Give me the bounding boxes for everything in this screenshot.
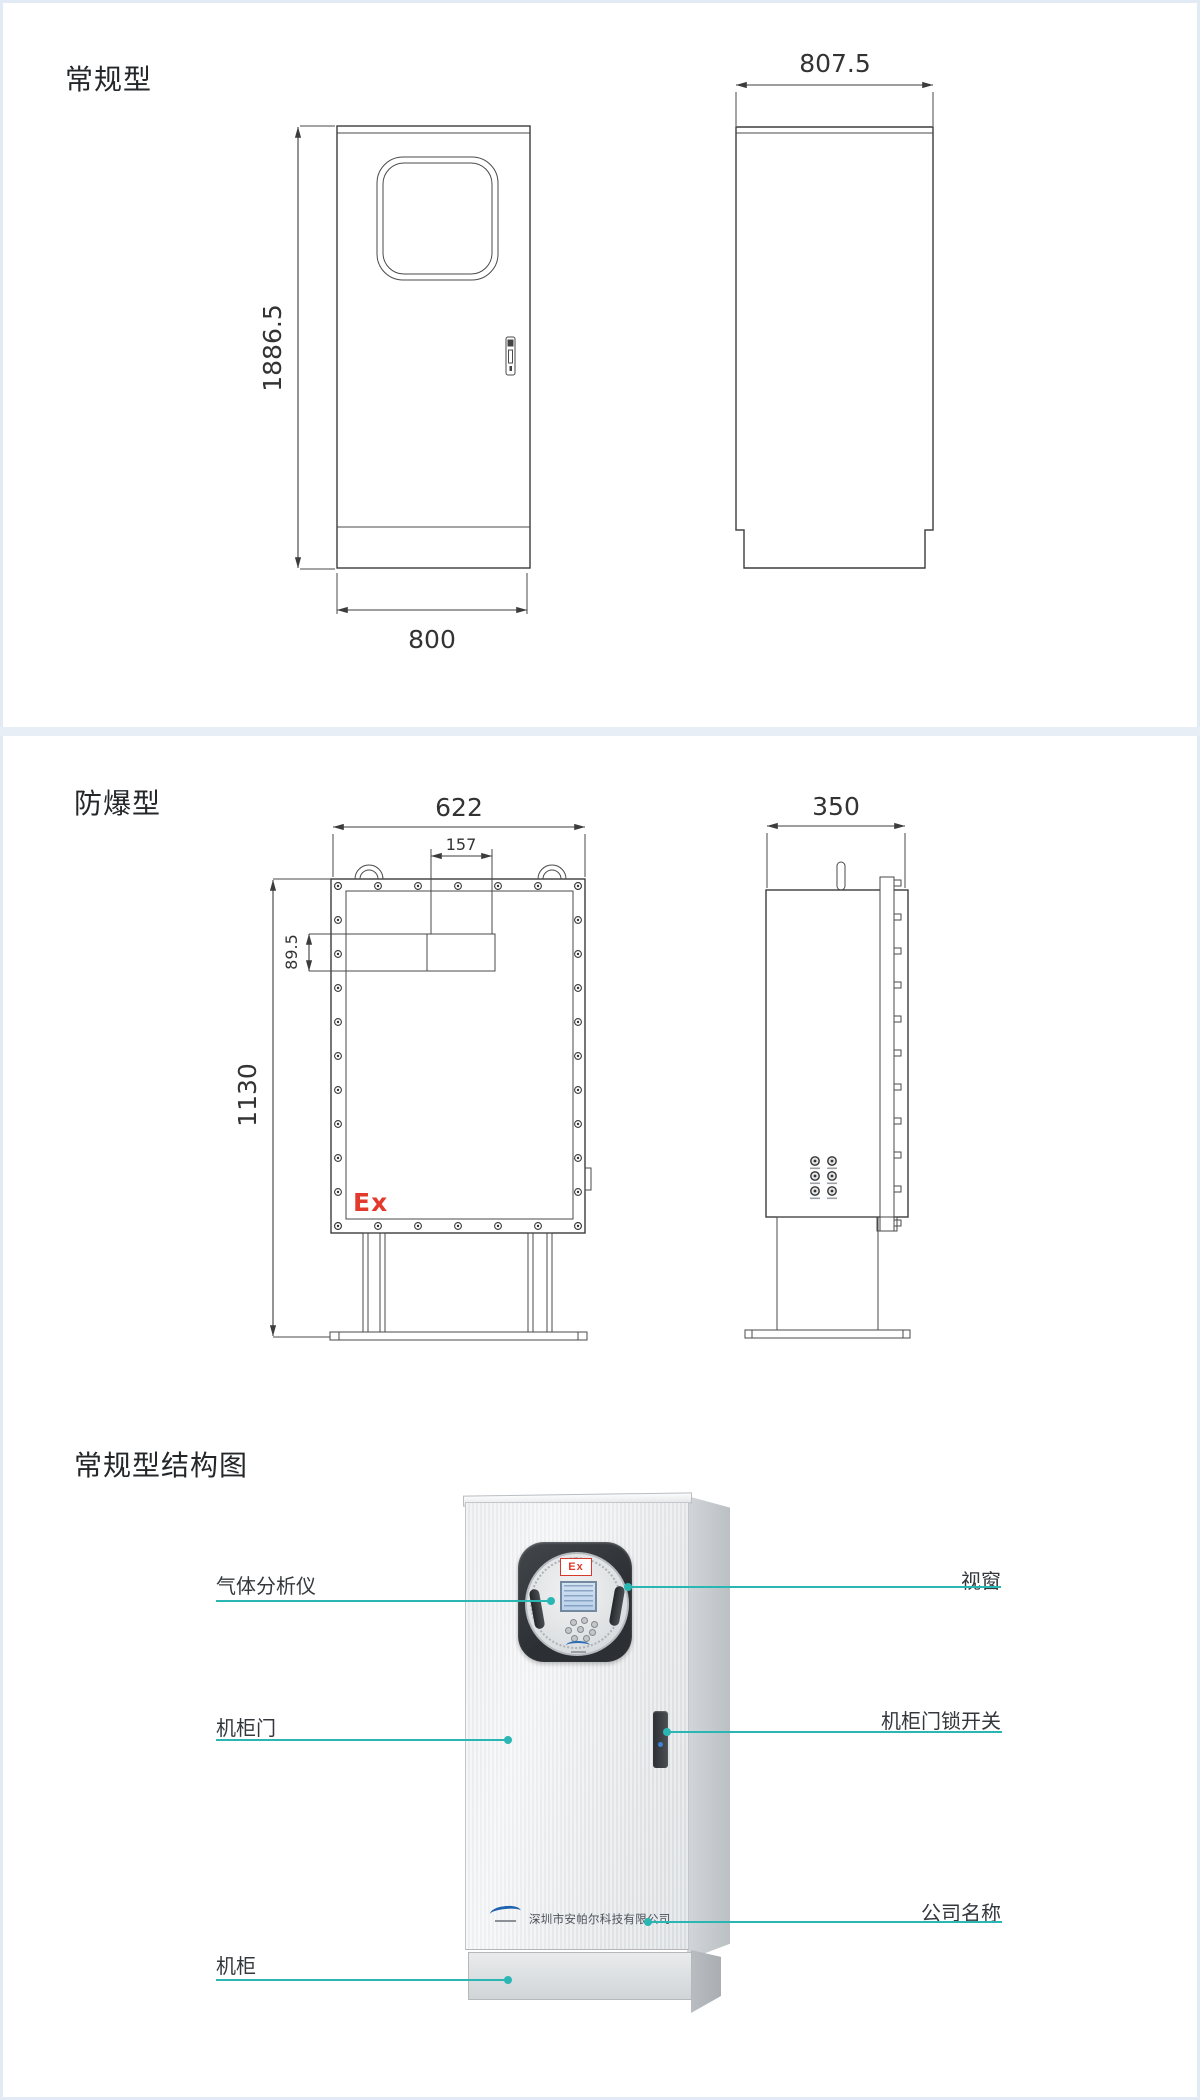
- explosion-depth-label: 350: [812, 792, 860, 821]
- leader-cabinet-door: [216, 1739, 508, 1741]
- lifting-eye-left: [355, 865, 383, 879]
- cabinet-side-face: [687, 1496, 730, 1960]
- leader-dot-gas-analyzer: [547, 1597, 555, 1605]
- callout-gas-analyzer: 气体分析仪: [216, 1570, 316, 1599]
- leader-dot-window: [624, 1583, 632, 1591]
- callout-lock-switch: 机柜门锁开关: [881, 1705, 1001, 1734]
- lifting-eye-right: [538, 865, 566, 879]
- regular-depth-dimension: 807.5: [736, 49, 933, 126]
- regular-front-view: [337, 126, 530, 568]
- regular-width-label: 800: [408, 625, 456, 654]
- knob: [565, 1627, 572, 1634]
- ex-badge: Ex: [560, 1558, 592, 1576]
- explosion-width-label: 622: [435, 793, 483, 822]
- regular-height-dimension: 1886.5: [258, 126, 335, 569]
- analyzer-logo-text: [571, 1651, 586, 1653]
- analyzer-logo-icon: [566, 1641, 590, 1650]
- ex-mark: Ex: [353, 1188, 388, 1217]
- port-height-dimension: 89.5: [282, 934, 427, 971]
- knob: [570, 1619, 577, 1626]
- explosion-front-view: Ex: [330, 865, 591, 1340]
- leader-dot-cabinet: [504, 1976, 512, 1984]
- knob: [591, 1621, 598, 1628]
- leader-gas-analyzer: [216, 1600, 551, 1602]
- explosion-side-view: [745, 862, 910, 1338]
- cable-glands: [810, 1157, 837, 1199]
- analyzer-knobs: [560, 1612, 598, 1642]
- engineering-drawing: 1886.5 800 807.5 Ex: [0, 0, 1200, 1400]
- lifting-eye-side: [837, 862, 845, 890]
- leader-window: [628, 1586, 1001, 1588]
- viewport-window-outline: [377, 157, 498, 280]
- base-plate-side: [745, 1330, 910, 1338]
- regular-width-dimension: 800: [337, 573, 527, 654]
- door-lock-switch: [653, 1711, 668, 1768]
- pedestal: [777, 1217, 878, 1330]
- junction-box: [427, 934, 495, 971]
- regular-depth-label: 807.5: [799, 49, 871, 78]
- hinge-tab: [585, 1168, 591, 1190]
- stand-legs: [363, 1233, 552, 1332]
- leader-lock-switch: [667, 1731, 1002, 1733]
- regular-height-label: 1886.5: [258, 304, 287, 391]
- analyzer-screen: [560, 1581, 597, 1612]
- explosion-height-label: 1130: [233, 1063, 262, 1127]
- leader-company-name: [648, 1921, 1002, 1923]
- knob: [581, 1617, 588, 1624]
- cabinet-plinth: [468, 1952, 692, 2000]
- structure-section-title: 常规型结构图: [74, 1444, 248, 1484]
- explosion-depth-dimension: 350: [767, 792, 905, 888]
- knob: [589, 1629, 596, 1636]
- callout-window: 视窗: [961, 1565, 1001, 1594]
- callout-cabinet: 机柜: [216, 1950, 256, 1979]
- port-height-label: 89.5: [282, 934, 301, 970]
- leader-cabinet: [216, 1979, 508, 1981]
- flange-bolts: [335, 883, 582, 1230]
- leader-dot-cabinet-door: [504, 1736, 512, 1744]
- port-width-label: 157: [446, 835, 477, 854]
- door-handle: [506, 337, 515, 375]
- knob: [577, 1626, 584, 1633]
- base-plate: [330, 1332, 587, 1340]
- leader-dot-lock-switch: [663, 1728, 671, 1736]
- callout-cabinet-door: 机柜门: [216, 1712, 276, 1741]
- door-flange-side: [880, 877, 894, 1231]
- company-logo-subtext: [495, 1920, 516, 1922]
- regular-side-view: [736, 127, 933, 568]
- side-flange-bolts: [894, 880, 901, 1226]
- leader-dot-company-name: [644, 1918, 652, 1926]
